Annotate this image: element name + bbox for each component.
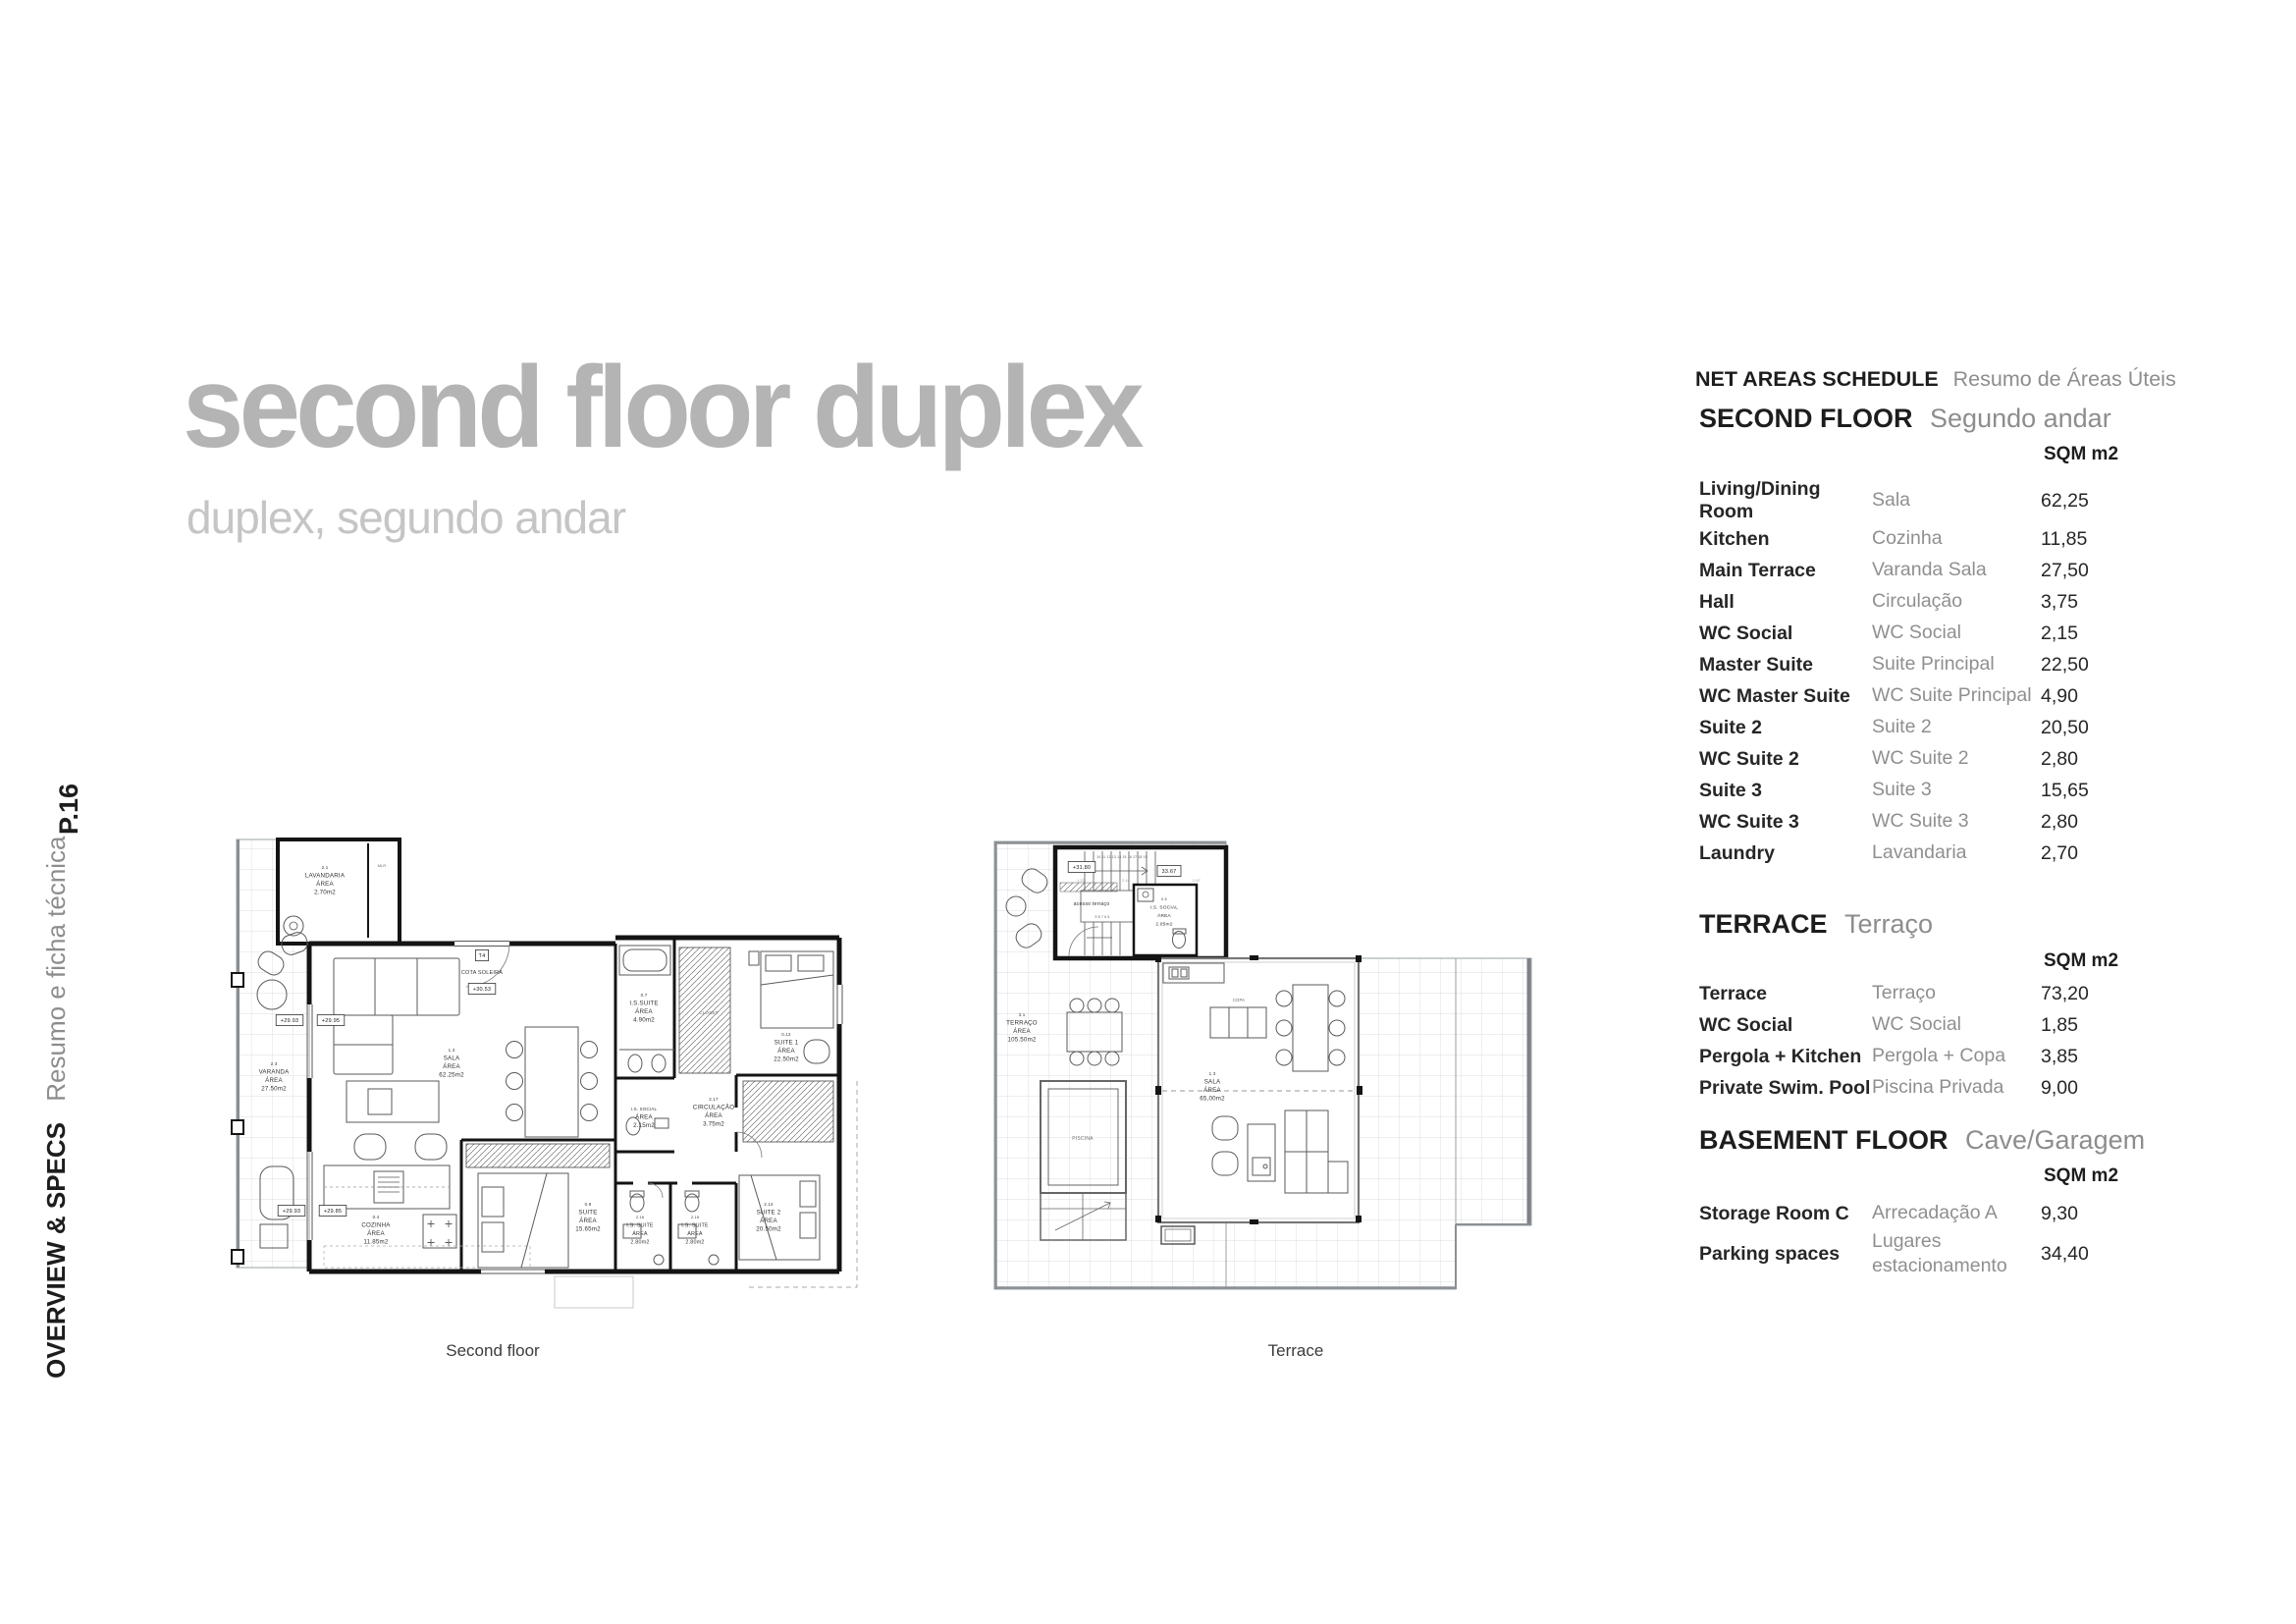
cell-val: 20,50 [2041,717,2121,739]
table-row: Parking spacesLugares estacionamento34,4… [1699,1229,2127,1279]
section-title-basement: BASEMENT FLOOR Cave/Garagem [1699,1125,2145,1156]
cell-pt: Cozinha [1872,526,2041,551]
page-title: second floor duplex [183,350,1140,465]
cell-val: 62,25 [2041,490,2121,513]
plan-level-marker: +29.95 [322,1018,340,1024]
plan-room-label: CLOSET [699,1010,718,1015]
section-title-pt: Segundo andar [1930,404,2111,433]
sidebar-page-number: P.16 [54,784,84,835]
cell-en: Pergola + Kitchen [1699,1046,1872,1068]
armchair-icon [804,1040,829,1063]
plan-room-label: COPA [1233,998,1245,1002]
section-title-pt: Cave/Garagem [1965,1125,2145,1155]
floorplan-second-floor: 2.1LAVANDARIAÁREA2.70m2MLR2.3VARANDAÁREA… [231,828,874,1316]
cell-en: Main Terrace [1699,560,1872,582]
plan-room-label: 0.4COZINHAÁREA11.85m2 [361,1215,391,1246]
schedule-heading-pt: Resumo de Áreas Úteis [1953,367,2176,391]
bed-icon [761,951,833,1028]
plan-room-label: I.S. SOCIALÁREA2.15m2 [631,1107,658,1129]
section-title-terrace: TERRACE Terraço [1699,909,1933,940]
table-row: HallCirculação3,75 [1699,586,2127,618]
plan-level-marker: +29.93 [281,1018,298,1024]
plan-room-label: 0.12SUITE 1ÁREA22.50m2 [774,1032,799,1063]
cell-val: 11,85 [2041,528,2121,551]
table-row: KitchenCozinha11,85 [1699,523,2127,555]
glass-living-box [1155,955,1362,1224]
plan-caption-second-floor: Second floor [429,1341,557,1361]
cell-pt: Suite 3 [1872,778,2041,802]
cell-en: Terrace [1699,983,1872,1005]
cell-val: 9,00 [2041,1077,2121,1100]
cell-en: Suite 3 [1699,780,1872,802]
schedule-heading-en: NET AREAS SCHEDULE [1695,367,1939,391]
cell-en: Parking spaces [1699,1243,1872,1266]
plan-room-label: 2.40 [1122,879,1130,883]
cell-en: WC Social [1699,623,1872,645]
plan-room-label: 1.20 [1077,879,1085,883]
plan-room-label: PISCINA [1072,1136,1094,1142]
unit-label: SQM m2 [2044,1165,2118,1187]
cell-val: 34,40 [2041,1243,2121,1266]
cell-en: Storage Room C [1699,1203,1872,1225]
cell-pt: Circulação [1872,589,2041,614]
cell-val: 3,85 [2041,1046,2121,1068]
sofa-icon [334,958,459,1015]
table-row: Suite 3Suite 315,65 [1699,775,2127,806]
cell-val: 1,85 [2041,1014,2121,1037]
plan-room-label: MLR [378,864,387,868]
cell-val: 2,80 [2041,811,2121,834]
cell-val: 22,50 [2041,654,2121,677]
cell-val: 15,65 [2041,780,2121,802]
terrace-wc-social [1134,885,1197,955]
section-title-en: SECOND FLOOR [1699,404,1913,433]
cell-pt: WC Suite Principal [1872,683,2041,708]
cell-val: 4,90 [2041,685,2121,708]
cell-en: Hall [1699,591,1872,614]
dining-table-icon [525,1027,578,1137]
cell-val: 2,70 [2041,842,2121,865]
areas-table-terrace: TerraceTerraço73,20WC SocialWC Social1,8… [1699,978,2127,1104]
cell-en: Private Swim. Pool [1699,1077,1872,1100]
table-row: WC Master SuiteWC Suite Principal4,90 [1699,680,2127,712]
cell-val: 3,75 [2041,591,2121,614]
table-row: WC SocialWC Social2,15 [1699,618,2127,649]
plan-room-label: 10 11 12 13 14 15 16 17 18 19 [1096,855,1148,859]
section-title-en: BASEMENT FLOOR [1699,1125,1949,1155]
plan-room-label: 0.7I.S.SUITEÁREA4.90m2 [629,993,658,1024]
cell-pt: Sala [1872,488,2041,513]
armchair-icon [354,1134,386,1160]
plan-level-marker: +31.80 [1073,865,1091,871]
schedule-heading: NET AREAS SCHEDULE Resumo de Áreas Úteis [1695,367,2176,392]
laundry-room [278,839,400,944]
cell-val: 2,80 [2041,748,2121,771]
cell-en: Master Suite [1699,654,1872,677]
plan-room-label: acesso terraço [1074,901,1110,907]
table-row: WC SocialWC Social1,85 [1699,1009,2127,1041]
cell-pt: Lugares estacionamento [1872,1229,2041,1279]
cell-pt: Varanda Sala [1872,558,2041,582]
table-row: WC Suite 2WC Suite 22,80 [1699,743,2127,775]
plan-room-label: 9 8 7 6 5 [1095,915,1110,919]
cell-val: 9,30 [2041,1203,2121,1225]
plan-room-label: 2.67 [1193,879,1201,883]
table-row: Main TerraceVaranda Sala27,50 [1699,555,2127,586]
cell-val: 73,20 [2041,983,2121,1005]
sidebar-section-pt: Resumo e ficha técnica [41,836,71,1101]
cell-pt: Terraço [1872,981,2041,1005]
page-subtitle: duplex, segundo andar [187,491,625,544]
plan-level-marker: 33.67 [1162,869,1177,875]
cell-en: WC Master Suite [1699,685,1872,708]
cell-pt: WC Suite 3 [1872,809,2041,834]
cell-pt: WC Social [1872,1012,2041,1037]
cell-pt: Suite Principal [1872,652,2041,677]
table-row: Suite 2Suite 220,50 [1699,712,2127,743]
armchair-icon [415,1134,447,1160]
section-title-en: TERRACE [1699,909,1828,939]
bed-icon [739,1175,820,1260]
plan-room-label: 2.17CIRCULAÇÃOÁREA3.75m2 [693,1097,735,1128]
cell-en: Suite 2 [1699,717,1872,739]
cell-pt: Lavandaria [1872,840,2041,865]
plan-level-marker: T4 [479,953,486,959]
table-row: TerraceTerraço73,20 [1699,978,2127,1009]
cell-en: WC Suite 2 [1699,748,1872,771]
cell-en: WC Suite 3 [1699,811,1872,834]
cell-en: WC Social [1699,1014,1872,1037]
plan-room-label: 1.3SALAÁREA62.25m2 [439,1048,464,1079]
table-row: Master SuiteSuite Principal22,50 [1699,649,2127,680]
tv-cabinet-icon [347,1081,439,1122]
cell-pt: WC Suite 2 [1872,746,2041,771]
brochure-page: P.16 OVERVIEW & SPECS Resumo e ficha téc… [0,0,2296,1624]
areas-table-second-floor: Living/Dining RoomSala62,25KitchenCozinh… [1699,478,2127,869]
plan-room-label: 0.9SUITEÁREA15.65m2 [575,1202,601,1233]
unit-label: SQM m2 [2044,950,2118,972]
cell-pt: Arrecadação A [1872,1201,2041,1225]
plan-level-marker: +29.85 [324,1209,342,1215]
table-row: Private Swim. PoolPiscina Privada9,00 [1699,1072,2127,1104]
cell-pt: WC Social [1872,621,2041,645]
plan-room-label: 2.16I.S. SUITEÁREA2.80m2 [626,1215,654,1246]
plan-caption-terrace: Terrace [1232,1341,1360,1361]
unit-label: SQM m2 [2044,444,2118,465]
table-row: Living/Dining RoomSala62,25 [1699,478,2127,523]
cell-val: 27,50 [2041,560,2121,582]
section-title-pt: Terraço [1844,909,1933,939]
cell-pt: Pergola + Copa [1872,1044,2041,1068]
table-row: LaundryLavandaria2,70 [1699,838,2127,869]
areas-table-basement: Storage Room CArrecadação A9,30Parking s… [1699,1198,2127,1279]
table-row: WC Suite 3WC Suite 32,80 [1699,806,2127,838]
sidebar-section-label: OVERVIEW & SPECS Resumo e ficha técnica [41,836,72,1379]
table-row: Pergola + KitchenPergola + Copa3,85 [1699,1041,2127,1072]
floorplan-terrace: 3.1TERRAÇOÁREA105.50m2PISCINA1.3SALAÁREA… [987,828,1620,1316]
toilet-icon [628,1055,642,1072]
plan-room-label: 2.15I.S. SUITEÁREA2.80m2 [681,1215,709,1246]
cell-val: 2,15 [2041,623,2121,645]
bidet-icon [652,1055,666,1072]
cell-en: Living/Dining Room [1699,478,1872,523]
cell-en: Kitchen [1699,528,1872,551]
cell-pt: Piscina Privada [1872,1075,2041,1100]
cell-pt: Suite 2 [1872,715,2041,739]
sidebar-section-en: OVERVIEW & SPECS [41,1122,71,1379]
plan-room-label: COTA SOLEIRA [461,970,503,976]
cell-en: Laundry [1699,842,1872,865]
table-row: Storage Room CArrecadação A9,30 [1699,1198,2127,1229]
plan-level-marker: +30.53 [473,987,491,993]
section-title-second-floor: SECOND FLOOR Segundo andar [1699,404,2111,434]
plan-level-marker: +29.93 [283,1209,300,1215]
